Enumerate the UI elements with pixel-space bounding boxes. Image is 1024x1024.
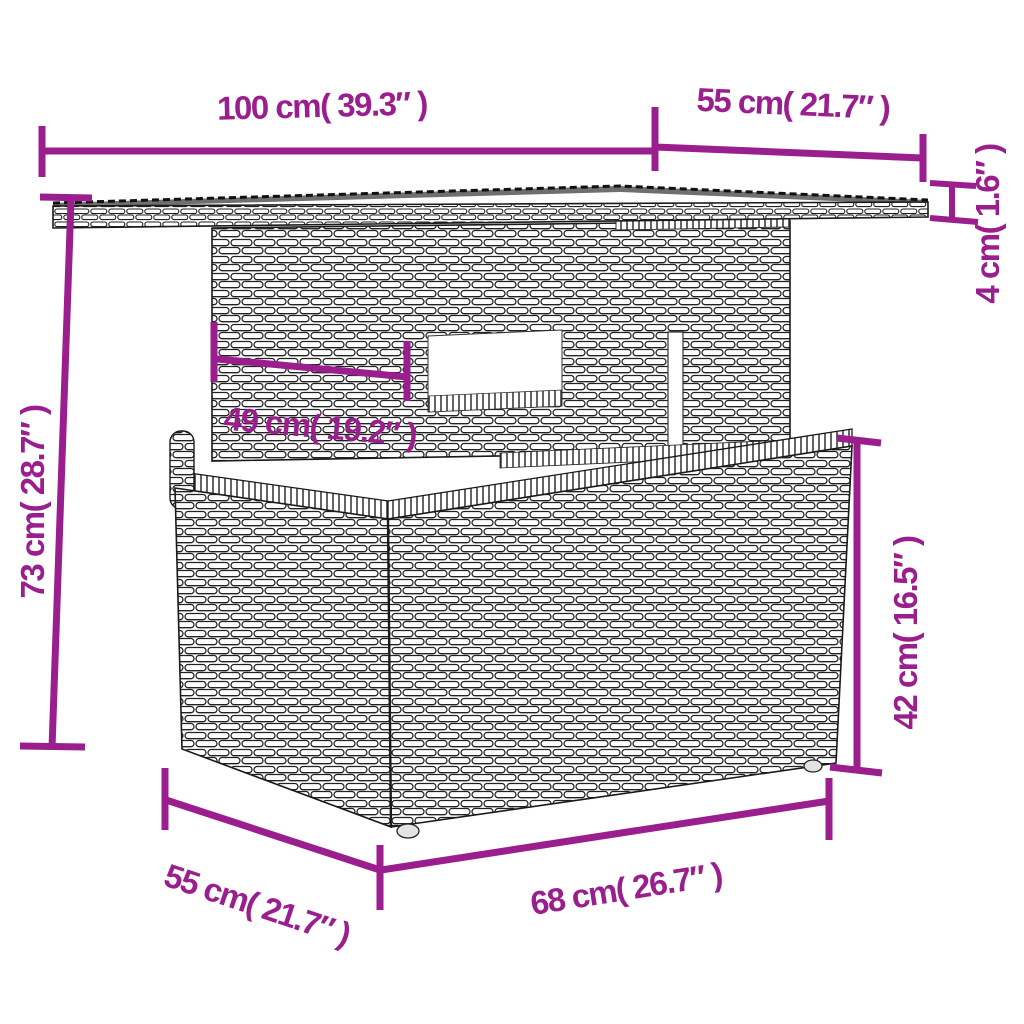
table-foot	[397, 824, 419, 838]
base	[170, 429, 852, 838]
dimension-label-total-height: 73 cm( 28.7″ )	[14, 406, 52, 599]
table-foot	[804, 760, 822, 772]
dimension-label-top-width: 100 cm( 39.3″ )	[217, 84, 428, 127]
dimension-label-tabletop-thickness: 4 cm( 1.6″ )	[969, 144, 1007, 303]
table-illustration	[0, 0, 1024, 1024]
base-front-face	[175, 488, 391, 827]
tabletop	[53, 186, 928, 228]
dimension-label-base-height: 42 cm( 16.5″ )	[887, 537, 925, 730]
pedestal-pole	[668, 332, 683, 450]
dimension-diagram: 100 cm( 39.3″ ) 55 cm( 21.7″ ) 4 cm( 1.6…	[0, 0, 1024, 1024]
dimension-line-top-depth	[655, 134, 923, 182]
